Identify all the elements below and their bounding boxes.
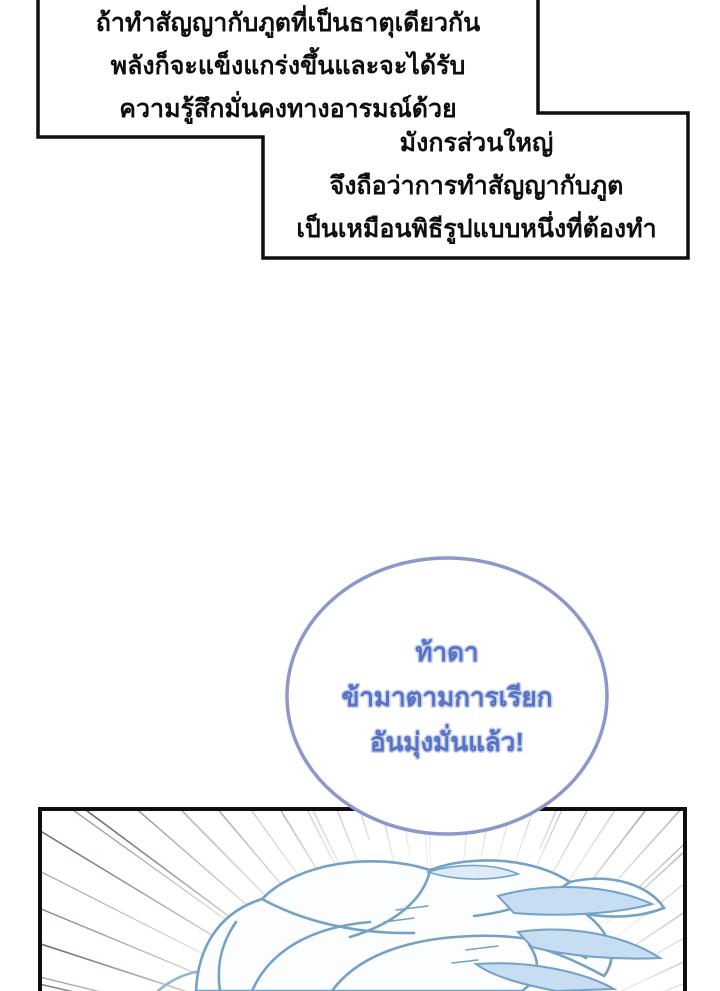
speed-line	[0, 280, 298, 876]
narration-boxes-outline	[38, 0, 688, 258]
speech-bubble-shape	[287, 558, 607, 834]
page-artwork	[0, 0, 720, 991]
speed-line	[0, 201, 341, 877]
comic-page: ถ้าทำสัญญากับภูตที่เป็นธาตุเดียวกัน พลัง…	[0, 0, 720, 991]
